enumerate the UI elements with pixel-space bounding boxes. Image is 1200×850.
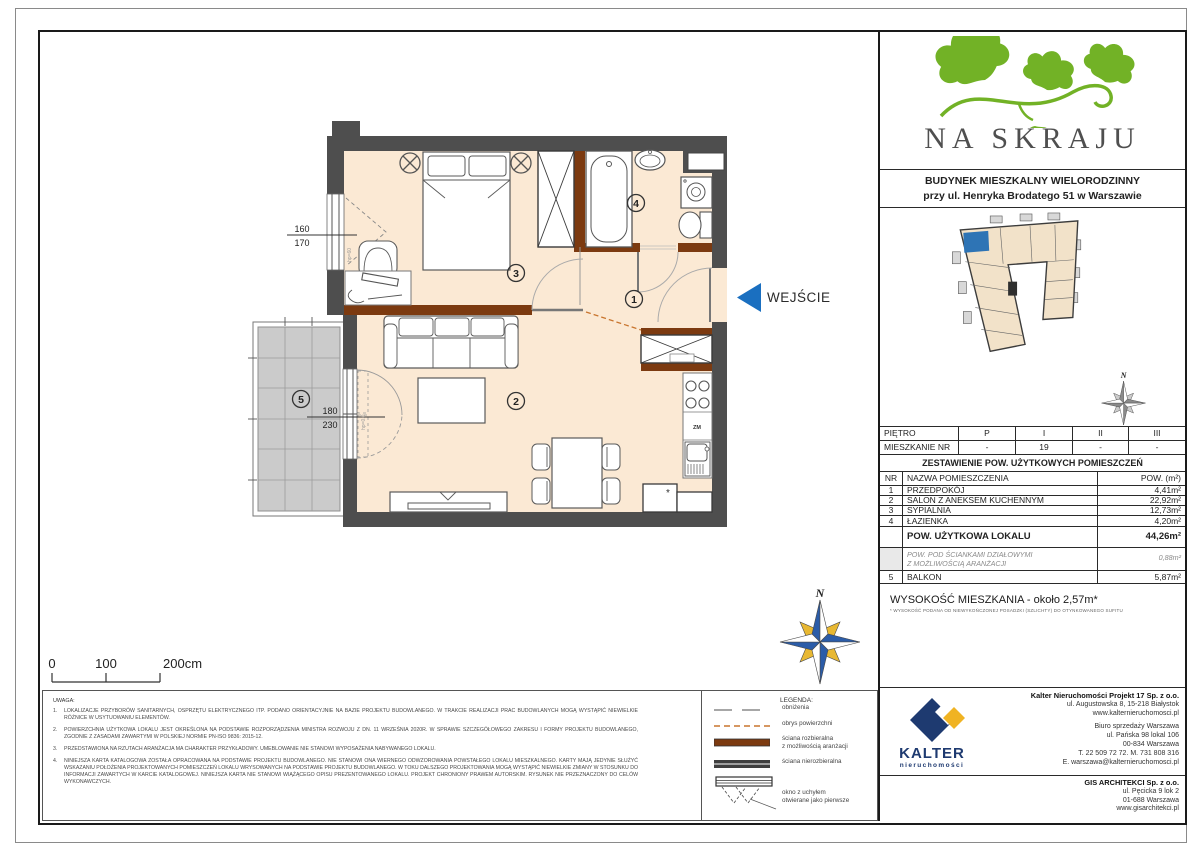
fridge: * <box>643 484 677 512</box>
apartment-height-footnote: * WYSOKOŚĆ PODANA OD NIEWYKOŃCZONEJ POSA… <box>890 608 1185 613</box>
unit-table-row: MIESZKANIE NR - 19 - - <box>880 441 1185 455</box>
architect-contact: GIS ARCHITEKCI Sp. z o.o. ul. Pęcicka 9 … <box>1084 779 1179 814</box>
kitchen-cabinet <box>677 492 712 512</box>
core-shaft <box>1008 282 1017 296</box>
catalog-sheet: ZM * <box>0 0 1200 850</box>
project-name: NA SKRAJU <box>880 122 1185 156</box>
duct-shaft <box>688 153 724 170</box>
developer-name: Kalter Nieruchomości Projekt 17 Sp. z o.… <box>1031 692 1179 701</box>
site-north-label: N <box>1120 371 1127 380</box>
developer-panel: KALTER nieruchomości Kalter Nieruchomośc… <box>880 688 1185 776</box>
siteplan-panel: N <box>880 208 1185 427</box>
scale-100: 100 <box>95 656 117 671</box>
legend-removable-wall-icon <box>714 738 770 748</box>
notes-title: UWAGA: <box>53 698 691 704</box>
legend-fixed-wall-icon <box>714 759 770 769</box>
building-type: BUDYNEK MIESZKALNY WIELORODZINNY <box>880 174 1185 189</box>
unit-number: 19 <box>1015 441 1072 454</box>
floorplan-drawing: ZM * <box>225 100 840 560</box>
partition-area-row: POW. POD ŚCIANKAMI DZIAŁOWYMI Z MOŻLIWOŚ… <box>880 548 1185 571</box>
legend-lowering-icon <box>714 707 770 713</box>
window-sill-height: hp=60 <box>347 248 353 262</box>
door-sill-height: hp=0.0 <box>361 414 367 430</box>
building-address-panel: BUDYNEK MIESZKALNY WIELORODZINNY przy ul… <box>880 170 1185 208</box>
sofa <box>384 316 518 368</box>
legend-item-label: ściana rozbieralnaz możliwością aranżacj… <box>782 735 848 751</box>
usable-area-total-row: POW. UŻYTKOWA LOKALU 44,26m² <box>880 527 1185 548</box>
kitchen-counter: ZM <box>683 373 712 478</box>
entrance-arrow-icon <box>737 283 761 312</box>
floor-table-row: PIĘTRO P I II III <box>880 427 1185 441</box>
area-table-title: ZESTAWIENIE POW. UŻYTKOWYCH POMIESZCZEŃ <box>880 455 1185 472</box>
legend-title: LEGENDA: <box>780 697 813 704</box>
area-table-row: 3 SYPIALNIA 12,73m² <box>880 506 1185 516</box>
area-table-row: 4 ŁAZIENKA 4,20m² <box>880 516 1185 527</box>
entrance-marker: WEJŚCIE <box>737 283 831 312</box>
apartment-height: WYSOKOŚĆ MIESZKANIA - około 2,57m* <box>890 594 1185 606</box>
notes-box: UWAGA: 1. LOKALIZACJE PRZYBORÓW SANITARN… <box>42 690 702 821</box>
dishwasher-label: ZM <box>693 425 701 431</box>
bed <box>423 152 510 270</box>
unit-highlight <box>963 231 989 253</box>
developer-email: E. warszawa@kalternieruchomosci.pl <box>1031 759 1179 768</box>
legend-item-label: okno z uchyłemotwierane jako pierwsze <box>782 789 849 805</box>
floor-label: PIĘTRO <box>880 427 958 440</box>
fridge-mark: * <box>666 488 670 499</box>
architect-website: www.gisarchitekci.pl <box>1084 805 1179 814</box>
legend-item-label: ściana nierozbieralna <box>782 758 842 766</box>
scale-bar: 0 100 200cm <box>44 648 234 688</box>
washing-machine <box>681 177 712 208</box>
bedroom-wardrobe <box>538 151 574 247</box>
developer-contact: Kalter Nieruchomości Projekt 17 Sp. z o.… <box>1031 692 1179 767</box>
note-item: 4. NINIEJSZA KARTA KATALOGOWA ZOSTAŁA OP… <box>53 758 638 786</box>
area-table-row: 2 SALON Z ANEKSEM KUCHENNYM 22,92m² <box>880 496 1185 506</box>
scale-0: 0 <box>48 656 55 671</box>
note-item: 1. LOKALIZACJE PRZYBORÓW SANITARNYCH, OS… <box>53 708 638 722</box>
north-label: N <box>815 586 826 600</box>
svg-text:180: 180 <box>322 406 337 416</box>
architect-name: GIS ARCHITEKCI Sp. z o.o. <box>1084 779 1179 788</box>
balcony-terrace <box>248 317 345 516</box>
unit-label: MIESZKANIE NR <box>880 441 958 454</box>
toilet <box>679 212 712 238</box>
coffee-table <box>418 378 485 423</box>
developer-website: www.kalternieruchomosci.pl <box>1031 710 1179 719</box>
title-block-sidebar: NA SKRAJU BUDYNEK MIESZKALNY WIELORODZIN… <box>878 32 1185 821</box>
architect-panel: GIS ARCHITEKCI Sp. z o.o. ul. Pęcicka 9 … <box>880 776 1185 822</box>
legend-box: LEGENDA: obniżenia obrys powierzchni ści… <box>702 690 878 821</box>
room-number-bath: 4 <box>633 198 639 210</box>
legend-item-label: obrys powierzchni <box>782 720 832 728</box>
note-item: 2. POWIERZCHNIA UŻYTKOWA LOKALU JEST OKR… <box>53 727 638 741</box>
entrance-label: WEJŚCIE <box>767 290 831 305</box>
developer-phones: T. 22 509 72 72. M. 731 808 316 <box>1031 750 1179 759</box>
room-number-balcony: 5 <box>298 394 304 406</box>
tv-stand <box>390 492 507 512</box>
room-number-hall: 1 <box>631 294 637 306</box>
kalter-logo-text: KALTER <box>899 745 965 762</box>
legend-window-icon <box>714 775 778 815</box>
svg-text:170: 170 <box>294 238 309 248</box>
project-logo-panel: NA SKRAJU <box>880 32 1185 170</box>
note-item: 3. PRZEDSTAWIONA NA RZUTACH ARANŻACJA MA… <box>53 746 638 753</box>
washbasin <box>635 150 665 170</box>
area-table-row: 1 PRZEDPOKÓJ 4,41m² <box>880 486 1185 496</box>
scale-200: 200cm <box>163 656 202 671</box>
kalter-logo-sub: nieruchomości <box>900 762 964 769</box>
legend-item-label: obniżenia <box>782 704 809 712</box>
area-table-header: NR NAZWA POMIESZCZENIA POW. (m²) <box>880 472 1185 486</box>
building-keyplan: N <box>880 208 1185 426</box>
room-number-living: 2 <box>513 396 519 408</box>
desk <box>345 271 411 305</box>
room-number-bedroom: 3 <box>513 268 519 280</box>
balcony-area-row: 5 BALKON 5,87m² <box>880 571 1185 584</box>
bathtub <box>586 151 632 247</box>
building-street: przy ul. Henryka Brodatego 51 w Warszawi… <box>880 189 1185 204</box>
hall-wardrobe <box>641 335 712 363</box>
kitchen-sink <box>685 442 710 476</box>
compass-rose: N <box>778 583 860 695</box>
apartment-height-panel: WYSOKOŚĆ MIESZKANIA - około 2,57m* * WYS… <box>880 584 1185 688</box>
legend-outline-icon <box>714 723 770 729</box>
svg-text:160: 160 <box>294 224 309 234</box>
ivy-vine-icon <box>923 36 1143 128</box>
site-compass-icon <box>1102 381 1146 425</box>
svg-text:230: 230 <box>322 420 337 430</box>
kalter-logo-icon: KALTER nieruchomości <box>888 694 984 770</box>
